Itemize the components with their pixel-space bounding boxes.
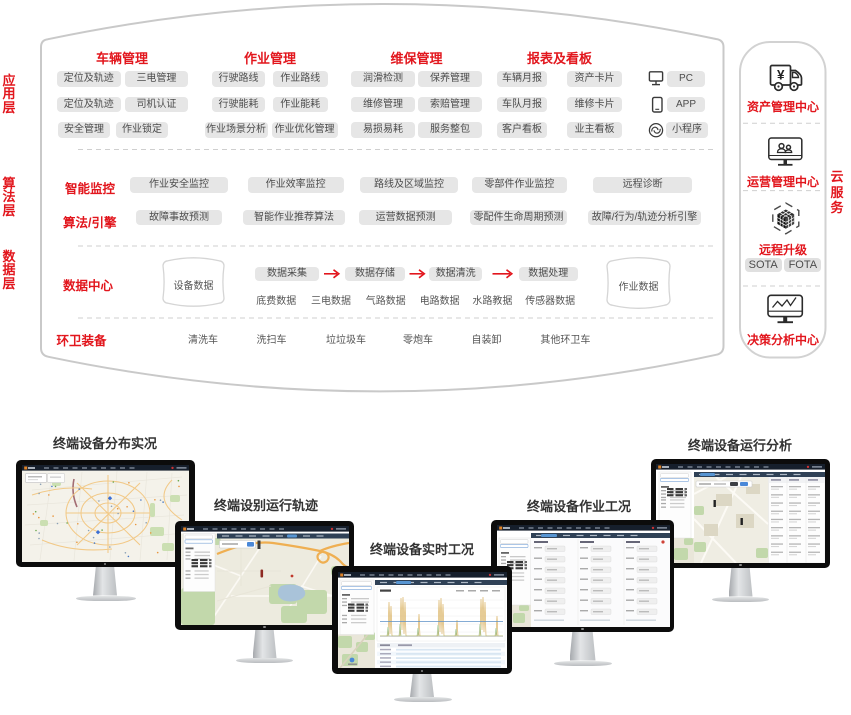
svg-text:¥: ¥ <box>777 68 785 83</box>
